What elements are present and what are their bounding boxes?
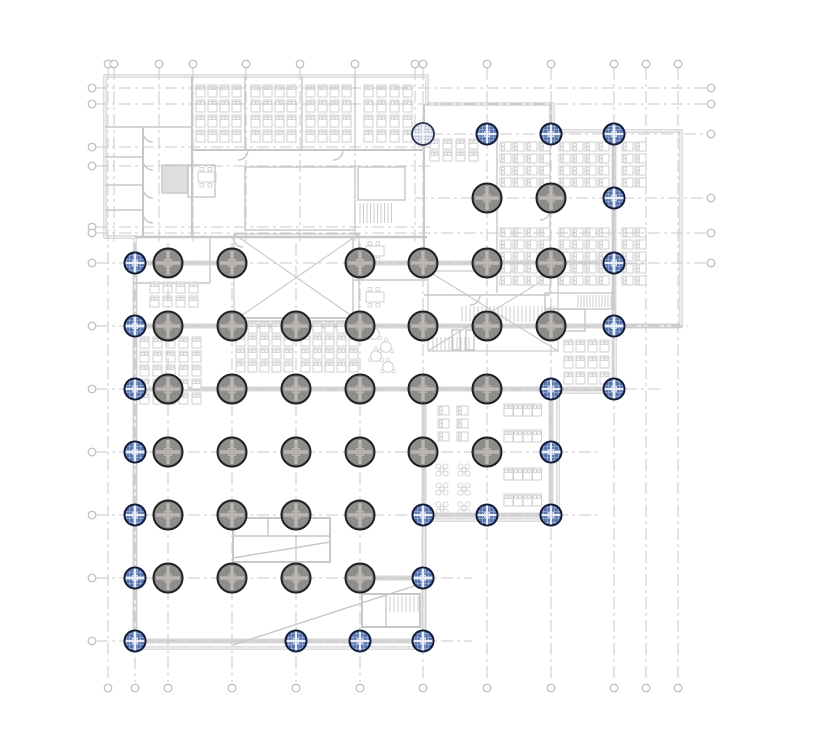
column-marker-blue [604,379,625,400]
column-marker-gray [282,312,311,341]
floor-plan-drawing [0,0,828,751]
meeting-chair [368,304,372,308]
round-table-chair [390,349,394,353]
round-table [381,342,392,353]
grid-bubble [483,684,491,692]
grid-bubble [547,684,555,692]
column-marker-gray [346,375,375,404]
desk-cluster [306,85,351,142]
meeting-chair [376,258,380,262]
plan-detail [143,132,153,142]
column-marker-gray [282,438,311,467]
column-marker-gray [346,249,375,278]
desk-cluster [622,228,646,285]
column-marker-gray [282,564,311,593]
x-table-seat [465,490,470,495]
x-table [440,468,444,472]
grid-bubble [88,162,96,170]
grid-bubble [88,229,96,237]
grid-bubble [642,684,650,692]
meeting-chair [208,184,212,188]
column-marker-blue [125,442,146,463]
meeting-chair [200,184,204,188]
grid-bubble [104,684,112,692]
grid-bubble [88,143,96,151]
x-table-seat [443,502,448,507]
column-marker-blue [477,505,498,526]
round-table-chair [380,358,384,362]
desk-cluster [504,404,542,442]
meeting-chair [376,304,380,308]
column-marker-gray [473,312,502,341]
grid-bubble [356,684,364,692]
room-outline [358,167,405,200]
grid-bubble [292,684,300,692]
grid-bubble [88,259,96,267]
meeting-chair [376,288,380,292]
x-table-seat [465,464,470,469]
plan-detail [143,188,153,198]
grid-bubble [88,100,96,108]
room-outline [362,594,420,627]
x-table-seat [443,483,448,488]
meeting-chair [368,288,372,292]
column-marker-blue [541,442,562,463]
grid-bubble [155,60,163,68]
x-table [462,506,466,510]
x-table-seat [443,490,448,495]
x-table-seat [458,490,463,495]
desk-cluster [364,85,412,142]
plan-detail [143,160,153,170]
column-marker-gray [346,564,375,593]
desk-cluster [150,282,198,307]
desk-cluster [559,228,609,285]
meeting-chair [208,168,212,172]
x-table-group [458,483,470,495]
grid-bubble [189,60,197,68]
room-outline [466,330,474,350]
x-table-group [458,464,470,476]
column-marker-gray [537,312,566,341]
grid-bubble [707,259,715,267]
column-marker-gray [409,438,438,467]
column-marker-gray [154,564,183,593]
column-marker-blue [604,253,625,274]
grid-bubble [88,448,96,456]
column-marker-gray [218,312,247,341]
plan-detail [233,584,420,645]
grid-bubble [707,194,715,202]
column-marker-gray [409,312,438,341]
grid-bubble [411,60,419,68]
grid-bubble [110,60,118,68]
x-table-seat [465,502,470,507]
x-table-seat [436,490,441,495]
column-marker-blue [350,631,371,652]
grid-bubble [707,130,715,138]
grid-bubble [228,684,236,692]
grid-bubble [164,684,172,692]
desk-cluster [622,142,646,187]
room-outline [545,293,613,309]
column-marker-gray [218,249,247,278]
round-table [371,351,382,362]
round-table-chair [392,369,396,373]
x-table-seat [436,502,441,507]
grid-bubble [642,60,650,68]
x-table-seat [465,471,470,476]
meeting-chair [368,242,372,246]
column-marker-blue [604,124,625,145]
round-table-chair [368,358,372,362]
x-table-seat [458,464,463,469]
column-marker-gray [154,375,183,404]
column-marker-blue [125,505,146,526]
column-marker-gray [409,375,438,404]
desk-cluster [251,85,296,142]
column-marker-blue [604,188,625,209]
column-marker-gray [218,375,247,404]
column-marker-gray [537,184,566,213]
x-table-seat [443,464,448,469]
x-table-group [436,464,448,476]
column-marker-light [412,123,434,145]
desk-cluster [500,142,550,187]
desk-cluster [504,468,542,506]
column-marker-gray [218,564,247,593]
x-table-seat [436,464,441,469]
column-marker-blue [413,631,434,652]
column-marker-blue [125,631,146,652]
grid-bubble [547,60,555,68]
x-table-seat [465,483,470,488]
column-marker-blue [125,253,146,274]
grid-bubble [131,684,139,692]
grid-bubble [419,60,427,68]
desk-cluster [438,406,468,441]
grid-bubble [242,60,250,68]
grid-bubble [610,60,618,68]
x-table-seat [436,471,441,476]
column-marker-blue [604,316,625,337]
x-table-seat [443,471,448,476]
plan-detail [143,213,153,223]
grid-bubble [707,100,715,108]
column-marker-gray [154,312,183,341]
grid-bubble [88,511,96,519]
column-marker-gray [218,501,247,530]
column-marker-blue [541,379,562,400]
grid-bubble [88,84,96,92]
meeting-table [366,292,384,302]
round-table [383,362,394,373]
column-marker-blue [125,568,146,589]
column-marker-gray [537,249,566,278]
x-table-seat [436,483,441,488]
meeting-chair [376,242,380,246]
grid-bubble [419,684,427,692]
column-marker-gray [154,501,183,530]
column-marker-gray [346,438,375,467]
column-marker-gray [346,312,375,341]
column-marker-gray [409,249,438,278]
x-table-seat [458,483,463,488]
column-marker-blue [541,505,562,526]
grid-bubble [88,385,96,393]
grid-bubble [707,84,715,92]
grid-bubble [483,60,491,68]
x-table-seat [458,471,463,476]
grid-bubble [707,229,715,237]
plan-detail [233,542,330,558]
grid-bubble [674,60,682,68]
column-marker-gray [154,249,183,278]
column-marker-gray [218,438,247,467]
meeting-chair [200,168,204,172]
grid-bubble [88,322,96,330]
column-marker-blue [413,505,434,526]
grid-bubble [88,637,96,645]
column-marker-gray [282,501,311,530]
x-table-seat [458,502,463,507]
grid-bubble [674,684,682,692]
grid-bubble [610,684,618,692]
column-marker-gray [473,184,502,213]
column-marker-blue [125,316,146,337]
column-marker-blue [413,568,434,589]
x-table [462,487,466,491]
column-marker-gray [473,249,502,278]
column-marker-gray [473,375,502,404]
column-marker-blue [286,631,307,652]
column-marker-gray [346,501,375,530]
round-table-chair [380,369,384,373]
x-table-group [458,502,470,514]
round-table-chair [378,336,382,340]
desk-cluster [564,340,609,384]
plan-detail [333,150,343,160]
floor-plan-page [0,0,828,751]
column-marker-blue [477,124,498,145]
column-marker-blue [541,124,562,145]
grid-bubble [351,60,359,68]
desk-cluster [430,139,478,161]
grid-bubble [296,60,304,68]
x-table-group [436,502,448,514]
column-marker-gray [473,438,502,467]
meeting-table [198,172,216,182]
column-marker-gray [154,438,183,467]
column-marker-blue [125,379,146,400]
x-table-group [436,483,448,495]
x-table [462,468,466,472]
desk-cluster [196,85,241,142]
grid-bubble [88,574,96,582]
x-table [440,487,444,491]
desk-cluster [559,142,609,187]
room-outline [162,165,188,193]
column-marker-gray [282,375,311,404]
x-table [440,506,444,510]
